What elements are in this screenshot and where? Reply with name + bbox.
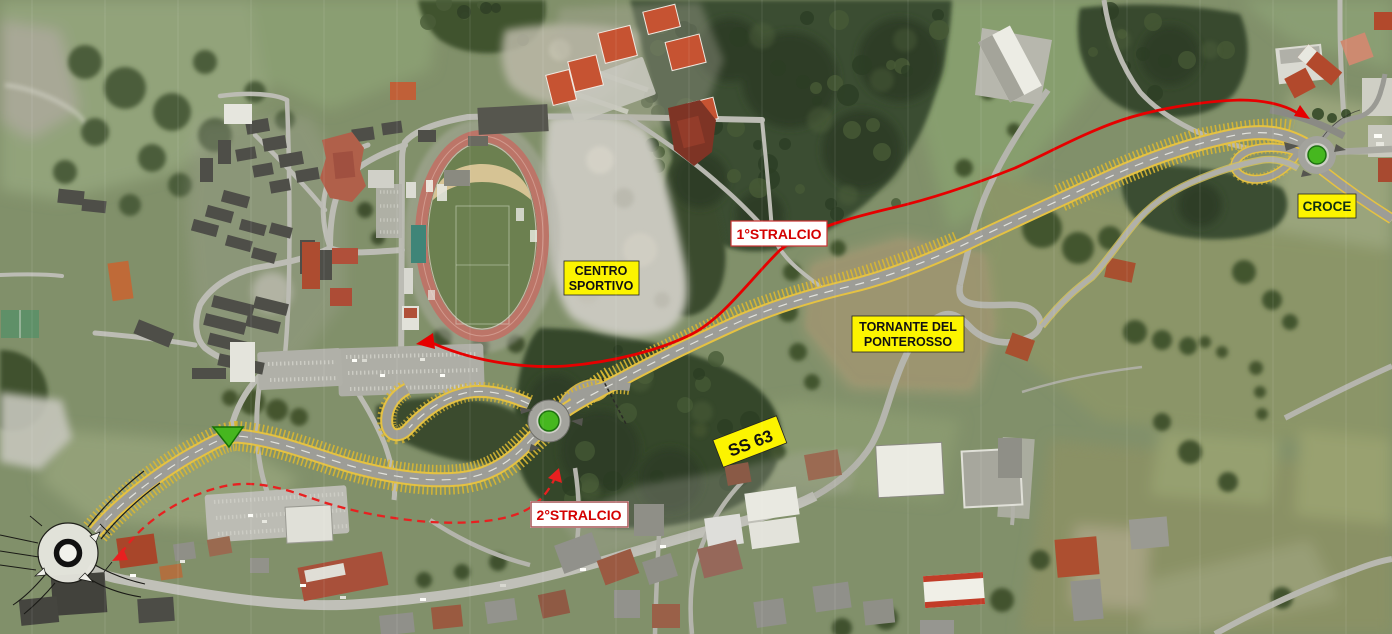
svg-text:2°STRALCIO: 2°STRALCIO bbox=[537, 507, 622, 523]
svg-text:SPORTIVO: SPORTIVO bbox=[569, 279, 634, 293]
svg-text:CENTRO: CENTRO bbox=[575, 264, 628, 278]
svg-text:1°STRALCIO: 1°STRALCIO bbox=[737, 226, 822, 242]
svg-text:CROCE: CROCE bbox=[1303, 199, 1352, 214]
